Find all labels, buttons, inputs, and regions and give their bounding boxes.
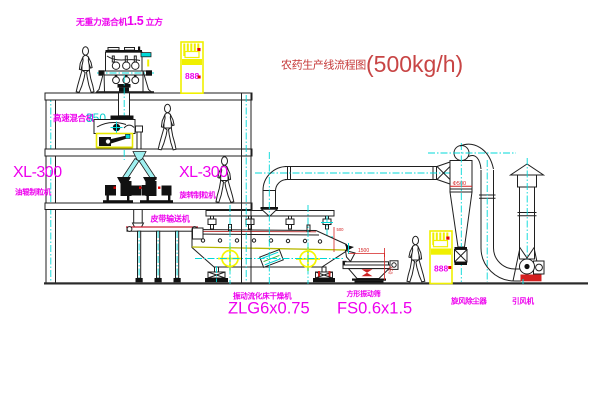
svg-text:1500: 1500 (358, 248, 369, 254)
svg-text:XL-300: XL-300 (179, 164, 228, 181)
svg-text:引风机: 引风机 (512, 296, 535, 306)
svg-text:FS0.6x1.5: FS0.6x1.5 (337, 300, 412, 318)
svg-text:450: 450 (387, 266, 393, 275)
svg-text:皮带输送机: 皮带输送机 (150, 214, 190, 224)
svg-text:旋转制粒机: 旋转制粒机 (179, 190, 217, 200)
svg-text:888: 888 (434, 264, 448, 274)
svg-text:888: 888 (185, 71, 199, 81)
svg-text:无重力混合机1.5 立方: 无重力混合机1.5 立方 (75, 14, 163, 28)
svg-text:Φ500: Φ500 (453, 181, 467, 187)
svg-text:ZLG6x0.75: ZLG6x0.75 (228, 300, 310, 318)
svg-text:旋风除尘器: 旋风除尘器 (450, 296, 487, 306)
svg-text:(500kg/h): (500kg/h) (366, 51, 463, 77)
svg-text:农药生产线流程图: 农药生产线流程图 (281, 58, 366, 72)
svg-text:XL-300: XL-300 (13, 164, 62, 181)
svg-text:油辊制粒机: 油辊制粒机 (15, 187, 52, 197)
svg-text:500: 500 (337, 227, 345, 232)
svg-text:方形振动筛: 方形振动筛 (347, 289, 381, 298)
